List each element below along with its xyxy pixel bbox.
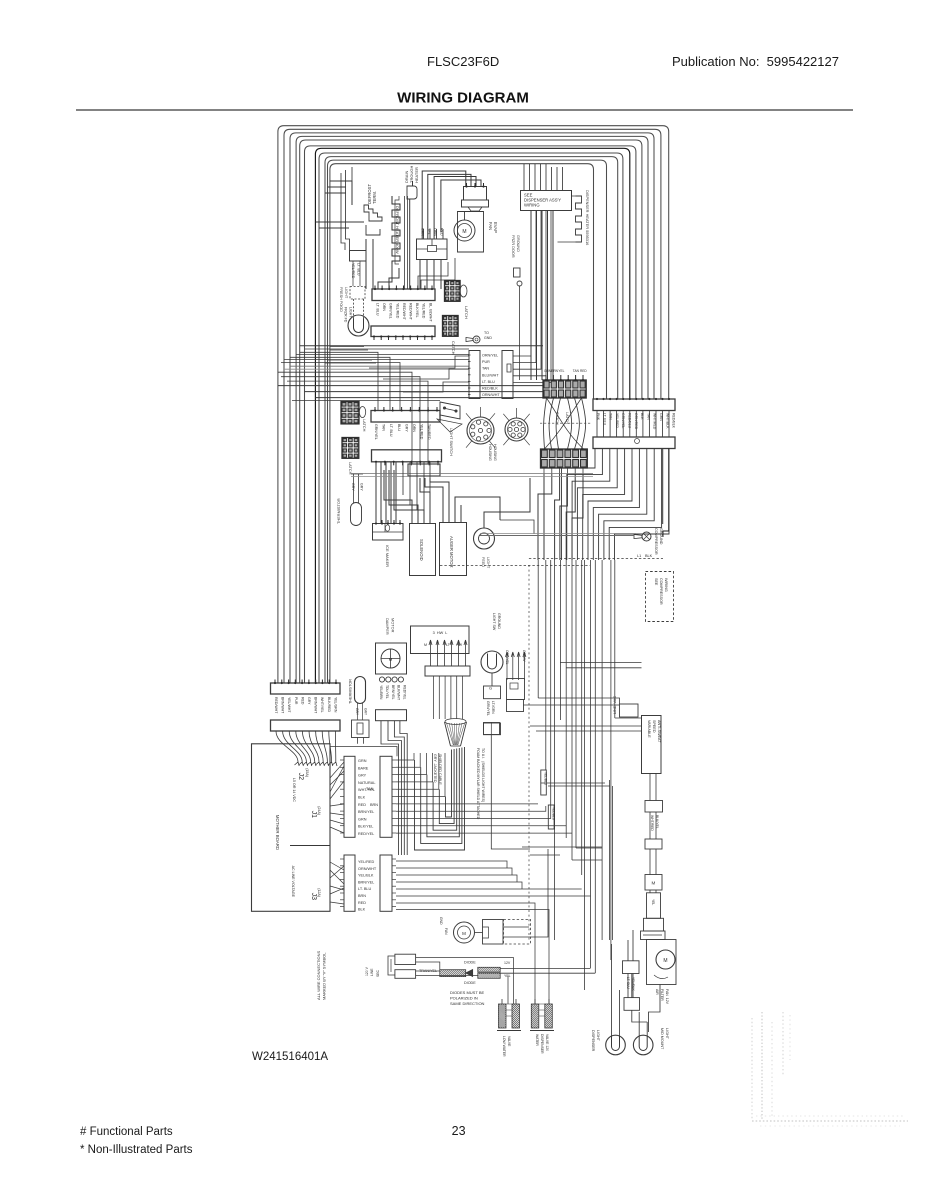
svg-text:YEL/BLK: YEL/BLK: [358, 874, 374, 878]
svg-text:DIODES MUST BE: DIODES MUST BE: [450, 990, 484, 995]
svg-text:ALL WIRE CONNECTIONS: ALL WIRE CONNECTIONS: [316, 950, 321, 1000]
svg-text:PUR: PUR: [482, 360, 490, 364]
svg-text:RED/BLK: RED/BLK: [672, 413, 676, 429]
svg-text:TO: TO: [484, 331, 489, 335]
svg-text:WIRING: WIRING: [524, 203, 540, 208]
svg-text:FAN: FAN: [444, 928, 448, 935]
svg-text:THERMISTOR: THERMISTOR: [336, 498, 341, 524]
svg-text:RED/WHT: RED/WHT: [409, 303, 413, 321]
svg-text:J3: J3: [310, 893, 317, 901]
svg-text:LT. BLU: LT. BLU: [376, 303, 380, 316]
svg-text:VALVE: VALVE: [507, 1036, 511, 1047]
svg-text:GRY JACKETED: GRY JACKETED: [433, 754, 437, 783]
svg-text:FAN: FAN: [488, 222, 493, 230]
svg-text:WIRING DIAGRAM: WIRING DIAGRAM: [397, 90, 529, 107]
svg-text:FOAM BACKED MYLAR SHIELD ATTAC: FOAM BACKED MYLAR SHIELD ATTACHED: [476, 748, 480, 820]
svg-text:YEL/RED: YEL/RED: [358, 860, 375, 864]
svg-text:BLU/WHT: BLU/WHT: [482, 373, 499, 377]
svg-text:M: M: [424, 643, 427, 647]
svg-text:LT. BLU: LT. BLU: [482, 380, 495, 384]
svg-text:M: M: [663, 958, 667, 964]
svg-text:GRN: GRN: [358, 817, 367, 821]
svg-text:M: M: [462, 931, 466, 936]
svg-text:TAN/RED: TAN/RED: [427, 424, 431, 440]
svg-text:SEE: SEE: [654, 578, 658, 586]
svg-text:YEL/RED: YEL/RED: [395, 303, 399, 319]
svg-text:BLK: BLK: [358, 796, 366, 800]
svg-text:YEL: YEL: [651, 899, 655, 905]
svg-text:TDL/YEL: TDL/YEL: [385, 685, 389, 699]
svg-text:POLARIZED IN: POLARIZED IN: [450, 996, 478, 1001]
svg-text:GRY: GRY: [404, 424, 408, 432]
svg-text:PUR: PUR: [294, 697, 298, 705]
svg-text:LT. BLU: LT. BLU: [389, 424, 393, 437]
svg-text:HOUSING: HOUSING: [493, 444, 497, 461]
svg-text:FILTER: FILTER: [660, 989, 664, 1001]
svg-text:LATCH: LATCH: [464, 306, 469, 319]
svg-text:BLK/RED: BLK/RED: [327, 697, 331, 712]
svg-text:VARIABLE: VARIABLE: [647, 720, 651, 738]
svg-text:AC LINE VOLTAGE: AC LINE VOLTAGE: [291, 866, 295, 898]
svg-text:* Non-Illustrated Parts: * Non-Illustrated Parts: [80, 1144, 193, 1156]
svg-text:YEL: YEL: [504, 974, 511, 978]
svg-text:ORN: ORN: [412, 424, 416, 432]
svg-text:ORN/WHT: ORN/WHT: [482, 393, 500, 397]
svg-text:L1: L1: [637, 554, 641, 558]
svg-text:DIODE: DIODE: [464, 961, 476, 965]
svg-text:YEL: YEL: [427, 228, 431, 235]
svg-text:TO U.I. (SHIELDS LIGHT WIRES): TO U.I. (SHIELDS LIGHT WIRES): [481, 748, 485, 802]
svg-text:CATCH: CATCH: [451, 341, 456, 355]
svg-text:SAME DIRECTION: SAME DIRECTION: [450, 1001, 485, 1006]
svg-text:ORN/YEL: ORN/YEL: [482, 354, 498, 358]
svg-text:ORN/WHT: ORN/WHT: [358, 867, 377, 871]
svg-text:TAN: TAN: [573, 369, 580, 373]
svg-text:VALVE 120: VALVE 120: [545, 1034, 549, 1051]
svg-text:# Functional Parts: # Functional Parts: [80, 1126, 173, 1138]
svg-text:YEL/BLU: YEL/BLU: [544, 772, 548, 786]
svg-text:L5 OR 14 VDC: L5 OR 14 VDC: [292, 778, 296, 802]
svg-text:BRN/YEL: BRN/YEL: [358, 880, 374, 884]
svg-text:BRN/YEL: BRN/YEL: [391, 685, 395, 700]
svg-text:GRY: GRY: [351, 483, 355, 491]
svg-text:GRY: GRY: [364, 708, 368, 716]
svg-text:YEL/WHT: YEL/WHT: [287, 697, 291, 713]
svg-text:GRY: GRY: [358, 774, 367, 778]
svg-text:BRN/WHT: BRN/WHT: [314, 697, 318, 714]
svg-text:(12A): (12A): [317, 888, 321, 897]
svg-text:ORN: ORN: [382, 303, 386, 311]
svg-text:DEFROST HEATER 400W: DEFROST HEATER 400W: [395, 206, 400, 254]
svg-text:GRN/YEL: GRN/YEL: [374, 424, 378, 440]
svg-text:WHT/YEL: WHT/YEL: [320, 697, 324, 713]
svg-text:AIR: AIR: [655, 989, 659, 995]
svg-text:EVAP: EVAP: [493, 222, 498, 233]
svg-text:23: 23: [452, 1124, 466, 1138]
svg-text:DISPENSER: DISPENSER: [591, 1030, 595, 1052]
svg-text:12V: 12V: [504, 961, 511, 965]
svg-text:GROUND: GROUND: [516, 235, 520, 252]
svg-text:HOUSING: HOUSING: [488, 444, 492, 461]
svg-text:RED: RED: [439, 228, 443, 236]
svg-text:FEED: FEED: [481, 557, 485, 567]
svg-text:TERM.: TERM.: [372, 191, 377, 204]
svg-text:YEL/GRN: YEL/GRN: [333, 697, 337, 713]
svg-text:M: M: [462, 229, 466, 235]
svg-text:BLK/YEL: BLK/YEL: [358, 825, 373, 829]
svg-text:YEL/BLU: YEL/BLU: [552, 807, 556, 821]
svg-text:FAN 12V: FAN 12V: [665, 989, 669, 1005]
svg-text:YEL/RED: YEL/RED: [422, 303, 426, 319]
svg-text:RED/BLK: RED/BLK: [482, 387, 498, 391]
svg-text:YEL: YEL: [558, 369, 564, 373]
svg-text:BRN/WHT: BRN/WHT: [281, 697, 285, 714]
svg-text:(15A): (15A): [305, 768, 309, 777]
svg-text:LOW WATER: LOW WATER: [502, 1036, 506, 1057]
svg-text:LINE: LINE: [370, 968, 374, 976]
svg-text:GND: GND: [439, 917, 443, 925]
svg-text:MOTHER BOARD: MOTHER BOARD: [275, 815, 280, 850]
svg-text:RED/WHT: RED/WHT: [274, 697, 278, 714]
svg-text:Publication No: 5995422127: Publication No: 5995422127: [672, 54, 839, 69]
svg-text:LATCH: LATCH: [348, 462, 353, 475]
svg-text:LIGHT: LIGHT: [349, 307, 353, 318]
svg-text:GRY: GRY: [355, 708, 359, 716]
svg-text:NATURAL: NATURAL: [358, 781, 375, 785]
svg-text:RED: RED: [300, 697, 304, 705]
svg-text:FLSC23F6D: FLSC23F6D: [427, 54, 499, 69]
svg-text:DAMPER: DAMPER: [385, 618, 390, 635]
svg-text:TAN: TAN: [609, 413, 613, 420]
svg-text:ORN/YEL: ORN/YEL: [505, 650, 509, 665]
svg-text:BLK/YEL: BLK/YEL: [415, 303, 419, 318]
svg-text:BRN: BRN: [358, 894, 366, 898]
svg-text:120 V: 120 V: [365, 966, 369, 976]
svg-text:GRN: GRN: [421, 228, 425, 236]
svg-text:GRN/W: GRN/W: [522, 650, 526, 662]
svg-text:RED/YEL: RED/YEL: [403, 685, 407, 700]
svg-text:WHT/RED: WHT/RED: [650, 815, 654, 831]
svg-text:3 HW L: 3 HW L: [433, 631, 448, 635]
svg-text:LIGHT SWITCH: LIGHT SWITCH: [449, 428, 454, 456]
svg-text:FRZR DOOR: FRZR DOOR: [511, 235, 515, 258]
svg-text:FRESH FOOD: FRESH FOOD: [339, 287, 343, 312]
svg-text:BLK: BLK: [645, 554, 653, 558]
svg-text:J2: J2: [297, 773, 304, 781]
svg-text:YEL/BRN: YEL/BRN: [379, 685, 383, 700]
svg-text:GRY: GRY: [360, 483, 364, 491]
svg-text:SPEED: SPEED: [652, 720, 656, 733]
svg-text:GND: GND: [484, 336, 492, 340]
svg-text:BLK/WHT: BLK/WHT: [397, 685, 401, 700]
svg-text:BARE: BARE: [358, 766, 369, 770]
svg-text:M: M: [389, 657, 393, 662]
svg-text:BRN: BRN: [370, 803, 378, 807]
svg-text:MID MOUNT: MID MOUNT: [660, 1028, 664, 1050]
svg-text:FRZR FD: FRZR FD: [344, 307, 348, 323]
svg-text:COMPRESSOR: COMPRESSOR: [654, 528, 658, 555]
svg-text:THERMISTOR: THERMISTOR: [349, 679, 353, 704]
svg-text:LIGHT: LIGHT: [665, 1028, 669, 1040]
svg-text:SOLENOID: SOLENOID: [419, 539, 424, 561]
svg-text:LT. BLU: LT. BLU: [358, 887, 371, 891]
svg-text:BLU: BLU: [397, 424, 401, 431]
svg-text:M: M: [652, 881, 656, 886]
svg-text:LIGHT: LIGHT: [486, 557, 490, 569]
svg-text:RED: RED: [358, 803, 366, 807]
svg-text:BRN/YEL: BRN/YEL: [358, 810, 374, 814]
svg-text:LT./GRN: LT./GRN: [491, 701, 495, 714]
svg-text:GROUND: GROUND: [659, 528, 663, 545]
svg-text:WATER: WATER: [535, 1034, 539, 1046]
svg-text:YEL/RED: YEL/RED: [420, 424, 424, 440]
svg-text:TAN: TAN: [382, 424, 386, 431]
svg-text:MOTOR: MOTOR: [391, 618, 396, 633]
svg-text:W241516401A: W241516401A: [252, 1051, 328, 1063]
svg-text:GRN: GRN: [358, 759, 367, 763]
svg-text:TAN: TAN: [366, 787, 374, 791]
svg-text:WIRING: WIRING: [664, 578, 668, 592]
svg-text:LATCH: LATCH: [362, 419, 367, 432]
svg-text:J1: J1: [310, 811, 317, 819]
svg-text:MARKED BY "#" SYMBOL: MARKED BY "#" SYMBOL: [322, 952, 327, 1000]
svg-text:GRN/YEL: GRN/YEL: [486, 701, 490, 716]
svg-text:HEATER: HEATER: [414, 167, 419, 183]
svg-text:LIGHT: LIGHT: [344, 287, 348, 299]
svg-text:GRN/YEL: GRN/YEL: [389, 303, 393, 319]
svg-text:SEC: SEC: [376, 969, 380, 977]
svg-text:LIGHT: LIGHT: [596, 1030, 600, 1042]
svg-text:RED/YEL: RED/YEL: [358, 832, 374, 836]
svg-text:BLK: BLK: [640, 413, 644, 420]
svg-text:RED: RED: [358, 901, 366, 905]
svg-text:LT. BLU: LT. BLU: [602, 413, 606, 426]
svg-text:(24A): (24A): [317, 806, 321, 815]
svg-text:BLK: BLK: [358, 908, 366, 912]
svg-text:GRY: GRY: [307, 697, 311, 705]
svg-text:ORN: ORN: [433, 228, 437, 236]
svg-text:COMPRESSOR: COMPRESSOR: [659, 578, 663, 605]
svg-text:ORN/RED: ORN/RED: [634, 413, 638, 430]
svg-text:TAN: TAN: [482, 367, 489, 371]
svg-text:LATCH: LATCH: [565, 412, 569, 424]
svg-text:DISPENSER HEATER 5595316: DISPENSER HEATER 5595316: [585, 190, 590, 245]
svg-text:DIODE: DIODE: [464, 981, 476, 985]
svg-text:DISPENSER: DISPENSER: [540, 1034, 544, 1054]
svg-text:GROUND: GROUND: [497, 613, 501, 629]
svg-text:ICE MAKER: ICE MAKER: [385, 545, 390, 567]
svg-text:AUGER MOTOR: AUGER MOTOR: [449, 536, 454, 568]
svg-text:BL. BLWHT: BL. BLWHT: [428, 303, 432, 323]
svg-text:RED/WHT: RED/WHT: [402, 303, 406, 321]
svg-text:LIGHT SW: LIGHT SW: [492, 613, 496, 631]
svg-text:RED: RED: [580, 369, 587, 373]
svg-text:ANTI-SWEAT: ANTI-SWEAT: [657, 720, 661, 743]
svg-text:G: G: [489, 686, 492, 691]
